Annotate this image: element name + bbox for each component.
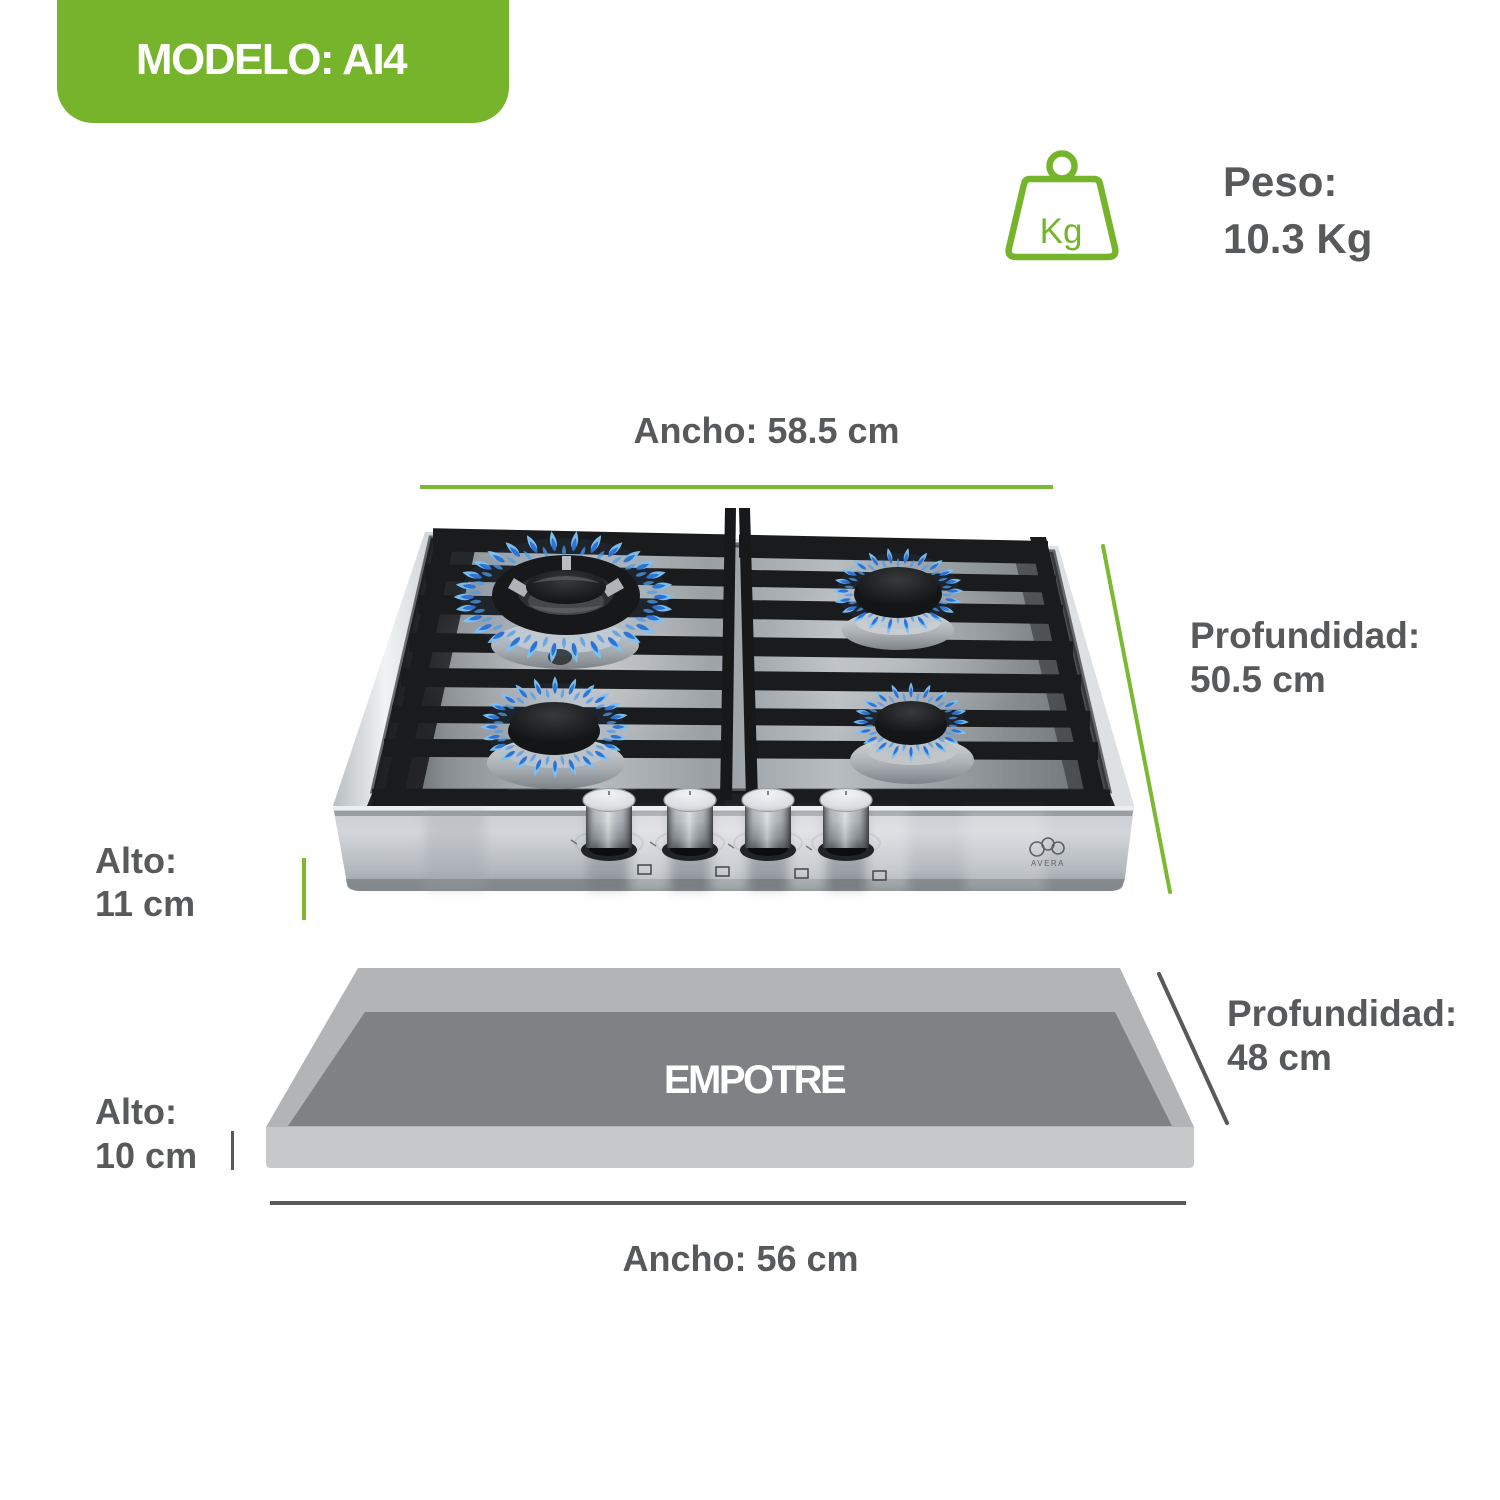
svg-text:AVERA: AVERA xyxy=(1031,859,1065,868)
svg-text:Kg: Kg xyxy=(1040,212,1083,251)
